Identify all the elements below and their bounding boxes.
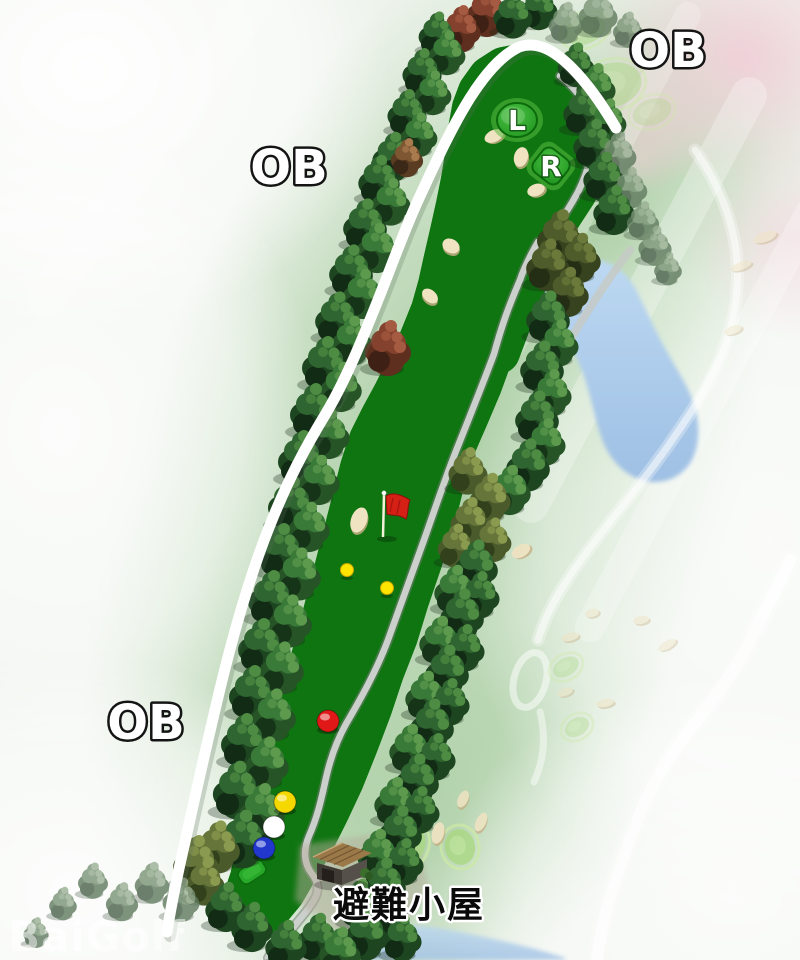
shelter-caption: 避難小屋 <box>333 885 485 926</box>
fairway-distance-dot <box>341 564 354 581</box>
golf-hole-map: L R <box>0 0 800 960</box>
tee-marker-white <box>263 816 285 840</box>
green-left-badge: L <box>508 104 526 137</box>
ob-label-bottom-left: OB <box>107 695 184 751</box>
tee-marker-red <box>317 710 339 734</box>
green-right-badge: R <box>540 150 562 183</box>
fairway-distance-dot <box>381 582 394 599</box>
tee-marker-blue <box>253 837 275 861</box>
ob-label-top-right: OB <box>629 23 706 79</box>
tee-marker-yellow <box>274 791 296 815</box>
watermark-logo: BaiGolf <box>8 912 186 960</box>
green-left: L <box>491 98 543 142</box>
course-map-canvas: L R <box>0 0 800 960</box>
ob-label-left: OB <box>250 140 327 196</box>
